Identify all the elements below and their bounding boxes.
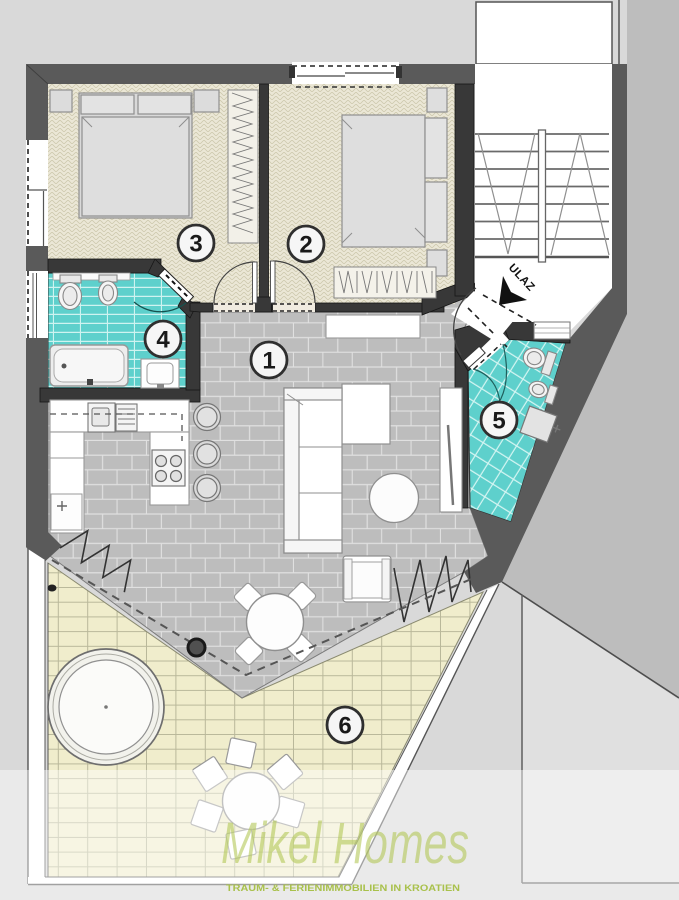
svg-text:3: 3 bbox=[189, 231, 202, 258]
svg-text:5: 5 bbox=[492, 408, 505, 435]
svg-text:6: 6 bbox=[338, 713, 351, 740]
svg-text:TRAUM- & FERIENIMMOBILIEN IN K: TRAUM- & FERIENIMMOBILIEN IN KROATIEN bbox=[226, 883, 460, 893]
svg-text:Mikel Homes: Mikel Homes bbox=[221, 811, 469, 876]
svg-text:1: 1 bbox=[262, 348, 275, 375]
svg-text:4: 4 bbox=[156, 327, 170, 354]
svg-text:2: 2 bbox=[299, 232, 312, 259]
